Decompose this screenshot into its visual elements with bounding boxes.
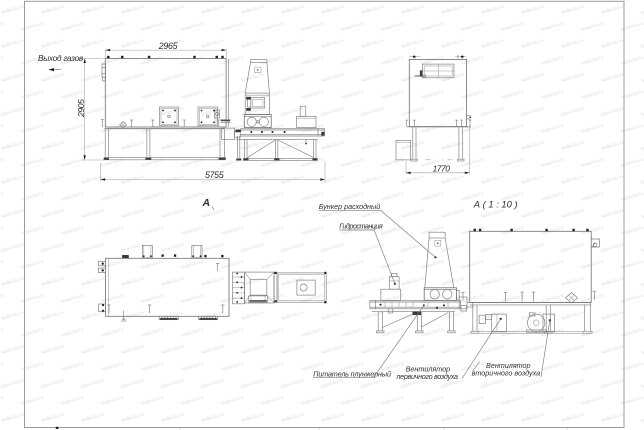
svg-text:Гидростанция: Гидростанция (339, 222, 383, 231)
svg-text:Питатель плунжерный: Питатель плунжерный (313, 369, 391, 378)
svg-text:Выход газов: Выход газов (38, 54, 84, 63)
svg-text:2905: 2905 (76, 99, 86, 118)
svg-text:А: А (202, 197, 211, 209)
svg-text:5755: 5755 (205, 170, 224, 180)
svg-text:1770: 1770 (433, 163, 451, 173)
svg-text:вторичного воздуха: вторичного воздуха (472, 368, 540, 377)
svg-text:А ( 1 : 10 ): А ( 1 : 10 ) (473, 198, 518, 209)
svg-text:первичного воздуха: первичного воздуха (396, 372, 457, 381)
svg-text:Бункер расходный: Бункер расходный (319, 202, 381, 211)
svg-text:2965: 2965 (158, 41, 178, 51)
